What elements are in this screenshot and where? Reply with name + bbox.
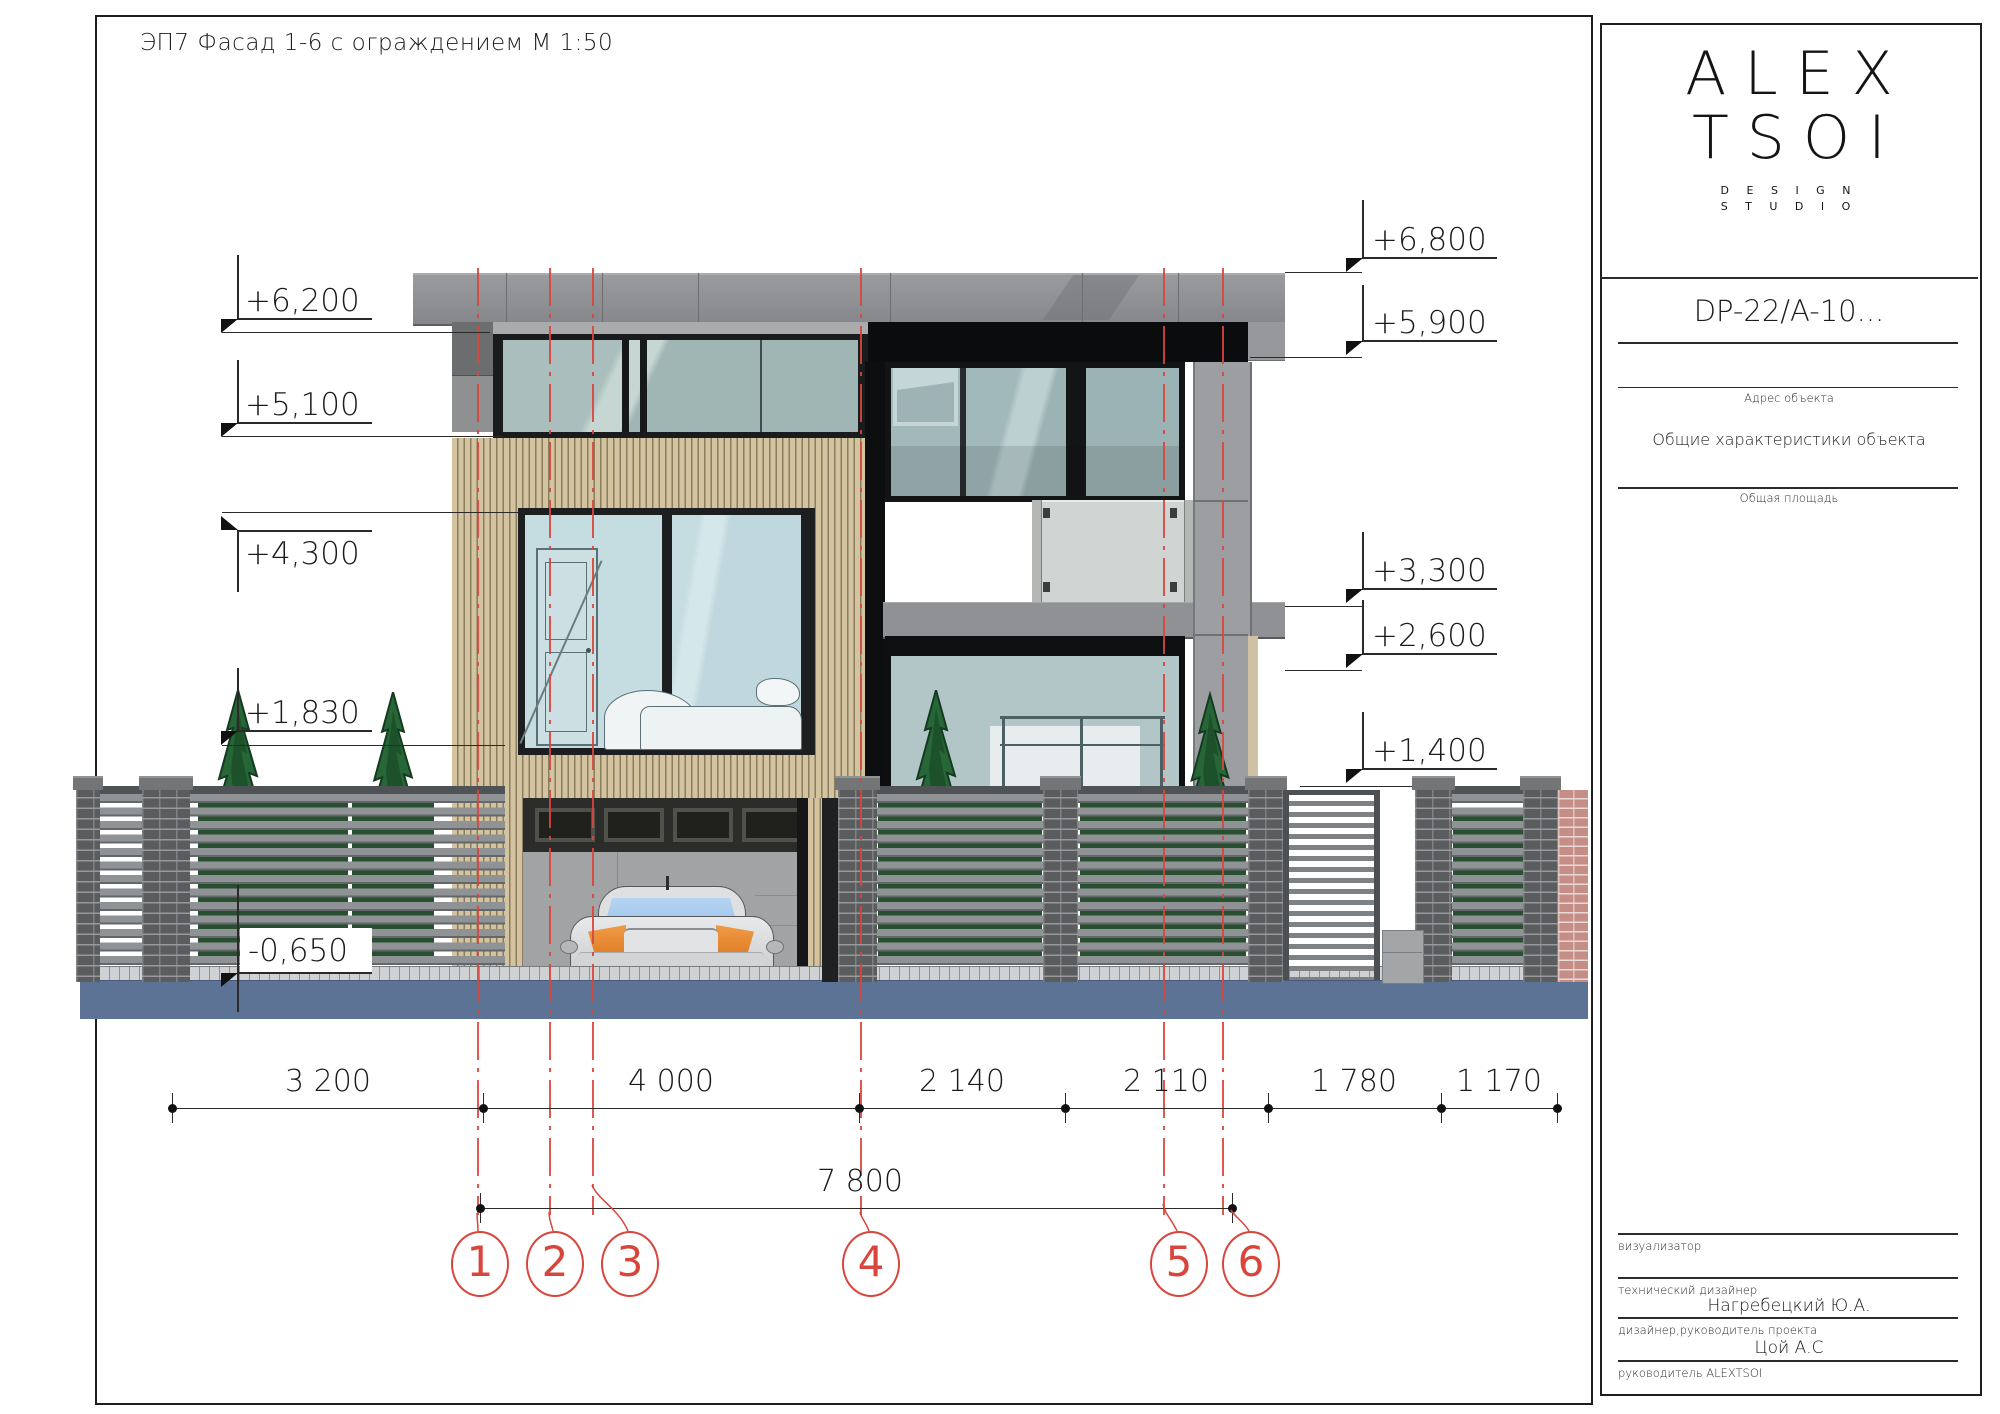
drawing-sheet: ЭП7 Фасад 1-6 с ограждением М 1:50 [0,0,2000,1414]
studio-logo: ALEX TSOI D E S I G N S T U D I O [1600,42,1978,213]
axis-bubble-6: 6 [1222,1231,1280,1297]
project-code: DP-22/A-10... [1600,294,1978,328]
axis-number: 4 [858,1237,885,1286]
logo-line2: TSOI [1600,106,1978,170]
tb-rule [1618,1277,1958,1279]
title-block-frame [1600,23,1982,1396]
tb-rule [1618,1317,1958,1319]
axis-bubble-4: 4 [842,1231,900,1297]
axis-number: 2 [542,1237,569,1286]
head-caption: руководитель ALEXTSOI [1618,1366,1762,1380]
tb-rule [1618,1360,1958,1362]
lead-designer-caption: дизайнер,руководитель проекта [1618,1323,1817,1337]
logo-line1: ALEX [1600,42,1978,106]
title-block-divider [1600,277,1978,279]
tech-designer-name: Нагребецкий Ю.А. [1600,1296,1978,1316]
axis-number: 3 [617,1237,644,1286]
tb-rule [1618,1233,1958,1235]
visualizer-caption: визуализатор [1618,1239,1701,1253]
axis-number: 5 [1166,1237,1193,1286]
characteristics-caption: Общие характеристики объекта [1600,430,1978,449]
area-caption: Общая площадь [1600,491,1978,505]
axis-bubble-3: 3 [601,1231,659,1297]
address-caption: Адрес объекта [1600,391,1978,405]
axis-bubble-1: 1 [451,1231,509,1297]
axis-bubble-2: 2 [526,1231,584,1297]
tb-rule [1618,387,1958,388]
logo-sub1: D E S I G N [1600,184,1978,197]
axis-bubble-5: 5 [1150,1231,1208,1297]
axis-number: 1 [467,1237,494,1286]
lead-designer-name: Цой А.С [1600,1338,1978,1358]
axis-number: 6 [1238,1237,1265,1286]
tb-rule [1618,342,1958,344]
tb-rule [1618,487,1958,489]
logo-sub2: S T U D I O [1600,200,1978,213]
tech-designer-caption: технический дизайнер [1618,1283,1757,1297]
